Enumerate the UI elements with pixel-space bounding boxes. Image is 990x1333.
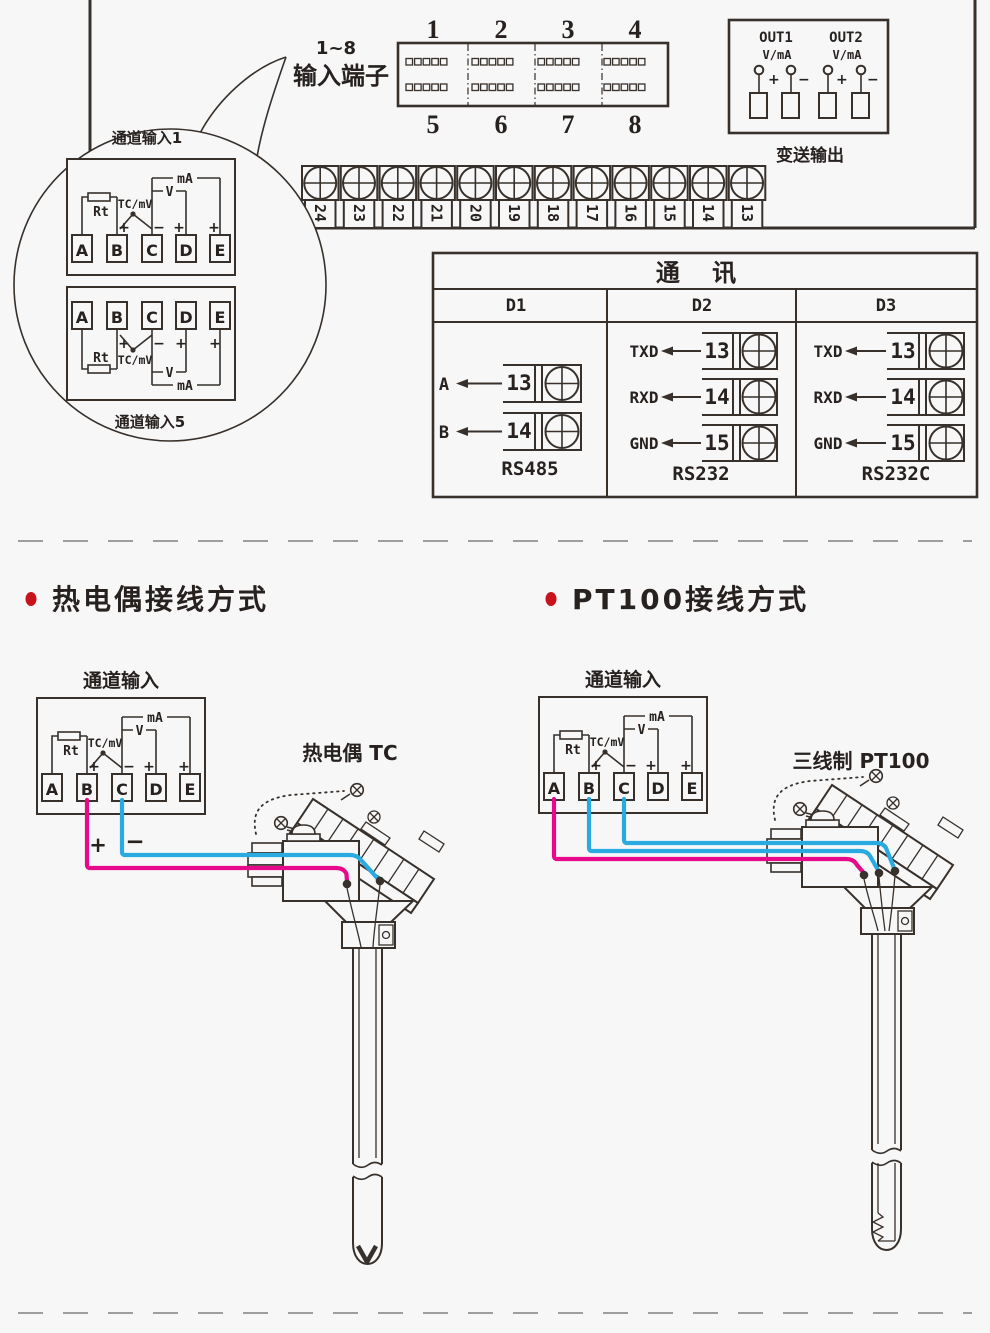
minus-sign: − [798,72,810,88]
screw-terminal-icon [930,427,963,460]
connector-number: 6 [495,110,508,139]
pt100-section-heading: PT100接线方式 [572,583,809,616]
screw-terminal-icon [546,415,579,448]
rs232-caption: RS232 [672,463,729,485]
plus-sign: + [836,72,848,88]
pt100-resistor-symbol [873,1213,883,1241]
minus-sign: − [125,829,144,855]
plus-sign: + [768,72,780,88]
arrow-left-icon [456,427,468,436]
terminal-e-label: E [215,308,226,327]
terminal-d-label: D [179,308,192,327]
connector-range-label: 1~8 [316,38,356,59]
screw-terminal-icon [930,335,963,368]
strip-number: 15 [660,204,678,222]
channel1-title: 通道输入1 [112,129,182,147]
thermocouple-tip-symbol [358,1246,376,1262]
tc-channel-input-box [37,698,205,814]
terminal-strip: 24 23 22 21 20 19 18 17 16 15 14 13 [302,166,765,228]
comm-cell-rs485: 13 A 14 B RS485 [439,365,581,480]
signal-label: TXD [630,342,659,361]
minus-sign: − [867,72,879,88]
arrow-left-icon [845,393,857,402]
rs485-caption: RS485 [501,458,558,480]
channel-input-title: 通道输入 [83,669,159,692]
output-caption: 变送输出 [776,145,844,166]
terminal-number: 14 [890,385,915,409]
minus-sign: − [153,336,165,352]
pt100-element-leads [878,1163,895,1241]
screw-terminal-icon [743,381,776,414]
strip-number: 24 [311,204,329,222]
comm-col-d3: D3 [876,296,896,316]
plus-sign: + [209,336,221,352]
transmitter-output-box: OUT1 OUT2 V/mA V/mA + − + − 变送输出 [729,20,888,166]
connector-number: 3 [562,15,575,44]
comm-table: 通 讯 D1 D2 D3 13 A 14 B RS485 13 TXD [433,253,977,497]
rt-label: Rt [93,351,109,366]
rs232c-caption: RS232C [862,463,931,485]
channel5-input-box: A B C D E + − + + TC/mV Rt V mA [67,287,235,400]
strip-number: 19 [505,204,523,222]
signal-label: GND [814,434,843,453]
comm-cell-rs232: 13 TXD 14 RXD 15 GND RS232 [630,333,777,485]
comm-title: 通 讯 [656,259,748,287]
pt100-sensor-label: 三线制 PT100 [792,749,929,773]
bullet-icon [26,592,37,606]
comm-col-d1: D1 [506,296,526,316]
comm-col-d2: D2 [692,296,712,316]
strip-number: 17 [583,204,601,222]
channel-input-title: 通道输入 [585,668,661,691]
screw-terminal-icon [743,427,776,460]
strip-number: 18 [544,204,562,222]
terminal-b-label: B [111,308,123,327]
bullet-icon [546,592,557,606]
signal-label: GND [630,434,659,453]
strip-number: 13 [738,204,756,222]
out1-label: OUT1 [759,30,793,46]
plus-sign: + [89,833,107,857]
strip-number: 22 [389,204,407,222]
pt100-wiring-section: PT100接线方式 通道输入 三线制 PT100 [539,583,963,1250]
tc-wiring-section: 热电偶接线方式 通道输入 热电偶 TC + − [26,583,445,1264]
pt100-channel-input-box [539,697,707,813]
arrow-left-icon [845,347,857,356]
terminal-a-label: A [76,308,89,327]
arrow-left-icon [456,379,468,388]
strip-number: 23 [350,204,368,222]
terminal-c-label: C [146,308,158,327]
wiring-diagram: A B C D E Rt TC/mV + − + + mA V [0,0,990,1333]
comm-cell-rs232c: 13 TXD 14 RXD 15 GND RS232C [814,333,964,485]
terminal-number: 14 [704,385,729,409]
connector-number: 4 [629,15,642,44]
signal-label: B [439,423,449,443]
v-label: V [166,366,174,381]
terminal-number: 13 [890,339,915,363]
screw-terminal-icon [743,335,776,368]
connector-number: 5 [427,110,440,139]
signal-label: TXD [814,342,843,361]
strip-number: 21 [428,204,446,222]
callout-balloon: 通道输入1 A B C D E + − + + TC/mV Rt V [14,57,326,441]
channel1-input-box [67,159,235,275]
connector-number: 2 [495,15,508,44]
tc-section-heading: 热电偶接线方式 [52,583,269,616]
arrow-left-icon [845,439,857,448]
wiring-diagram-page: A B C D E Rt TC/mV + − + + mA V [0,0,990,1333]
terminal-number: 13 [506,371,531,395]
channel5-title: 通道输入5 [115,413,185,431]
vma-label: V/mA [833,48,863,62]
signal-label: RXD [814,388,843,407]
plus-sign: + [175,336,187,352]
rt-resistor-symbol [88,365,110,373]
input-connector: 1 2 3 4 5 6 7 8 1~8 输入端子 [293,15,668,139]
screw-terminal-icon [546,367,579,400]
arrow-left-icon [661,439,673,448]
terminal-number: 13 [704,339,729,363]
vma-label: V/mA [763,48,793,62]
terminal-number: 15 [704,431,729,455]
terminal-number: 14 [506,419,531,443]
signal-label: RXD [630,388,659,407]
connector-name-label: 输入端子 [293,62,389,90]
connector-number: 7 [562,110,575,139]
arrow-left-icon [661,347,673,356]
strip-number: 20 [466,204,484,222]
screw-terminal-icon [930,381,963,414]
connector-number: 1 [427,15,440,44]
connector-number: 8 [629,110,642,139]
strip-number: 16 [622,204,640,222]
ma-label: mA [177,379,193,394]
tc-mv-label: TC/mV [118,353,153,367]
tc-sensor-label: 热电偶 TC [302,741,397,765]
signal-label: A [439,375,449,395]
terminal-number: 15 [890,431,915,455]
strip-number: 14 [699,204,717,222]
out2-label: OUT2 [829,30,863,46]
arrow-left-icon [661,393,673,402]
